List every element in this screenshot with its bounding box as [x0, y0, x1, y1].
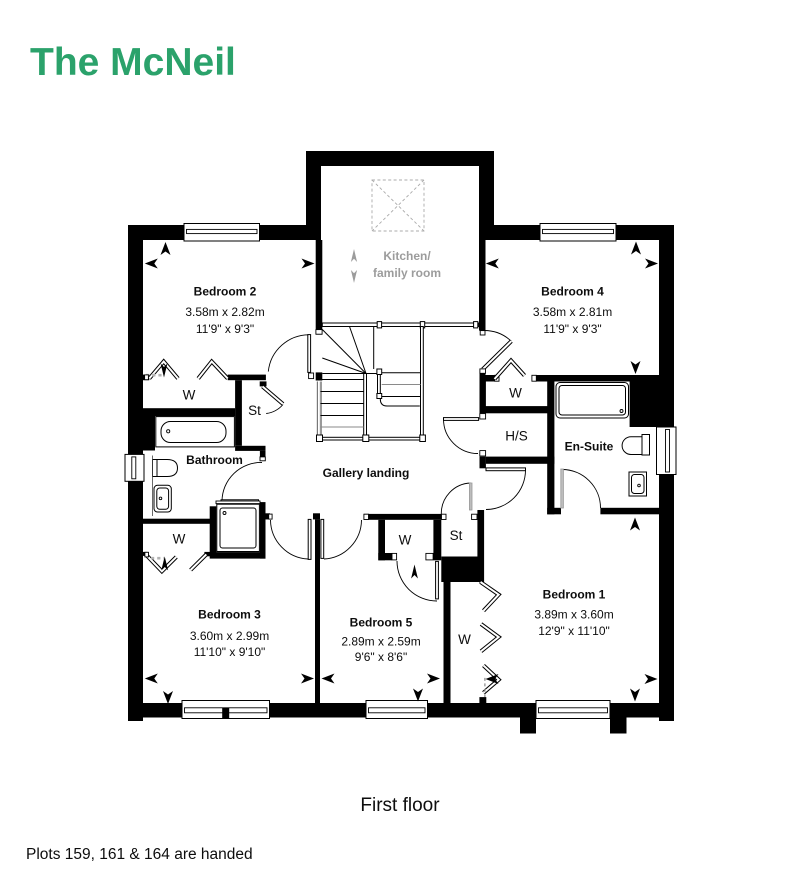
- svg-text:3.89m x 3.60m: 3.89m x 3.60m: [534, 608, 613, 622]
- svg-text:11'10" x 9'10": 11'10" x 9'10": [194, 645, 266, 659]
- svg-text:11'9" x 9'3": 11'9" x 9'3": [543, 322, 601, 336]
- svg-text:12'9" x 11'10": 12'9" x 11'10": [538, 624, 610, 638]
- svg-text:11'9" x 9'3": 11'9" x 9'3": [196, 322, 254, 336]
- svg-text:Plots 159, 161 & 164 are hande: Plots 159, 161 & 164 are handed: [26, 846, 253, 863]
- svg-text:W: W: [509, 386, 522, 401]
- svg-text:2.89m x 2.59m: 2.89m x 2.59m: [341, 635, 420, 649]
- svg-text:Bathroom: Bathroom: [186, 453, 243, 467]
- svg-text:Bedroom 2: Bedroom 2: [194, 285, 257, 299]
- svg-text:Bedroom 4: Bedroom 4: [541, 285, 604, 299]
- svg-text:H/S: H/S: [505, 429, 528, 444]
- svg-text:St: St: [450, 528, 463, 543]
- svg-text:family room: family room: [373, 266, 441, 280]
- svg-text:W: W: [458, 632, 471, 647]
- svg-text:3.60m x 2.99m: 3.60m x 2.99m: [190, 629, 269, 643]
- svg-text:3.58m x 2.81m: 3.58m x 2.81m: [533, 305, 612, 319]
- svg-text:Bedroom 3: Bedroom 3: [198, 608, 261, 622]
- svg-text:First floor: First floor: [360, 795, 440, 816]
- svg-text:The McNeil: The McNeil: [30, 41, 236, 84]
- svg-text:9'6" x 8'6": 9'6" x 8'6": [355, 650, 407, 664]
- svg-text:Kitchen/: Kitchen/: [383, 249, 431, 263]
- svg-text:Bedroom 5: Bedroom 5: [350, 616, 413, 630]
- svg-text:En-Suite: En-Suite: [565, 440, 614, 454]
- svg-text:3.58m x 2.82m: 3.58m x 2.82m: [185, 305, 264, 319]
- svg-text:St: St: [248, 403, 261, 418]
- svg-text:Bedroom 1: Bedroom 1: [543, 588, 606, 602]
- svg-text:W: W: [183, 388, 196, 403]
- svg-text:W: W: [399, 533, 412, 548]
- svg-text:W: W: [173, 532, 186, 547]
- svg-text:Gallery landing: Gallery landing: [323, 466, 410, 480]
